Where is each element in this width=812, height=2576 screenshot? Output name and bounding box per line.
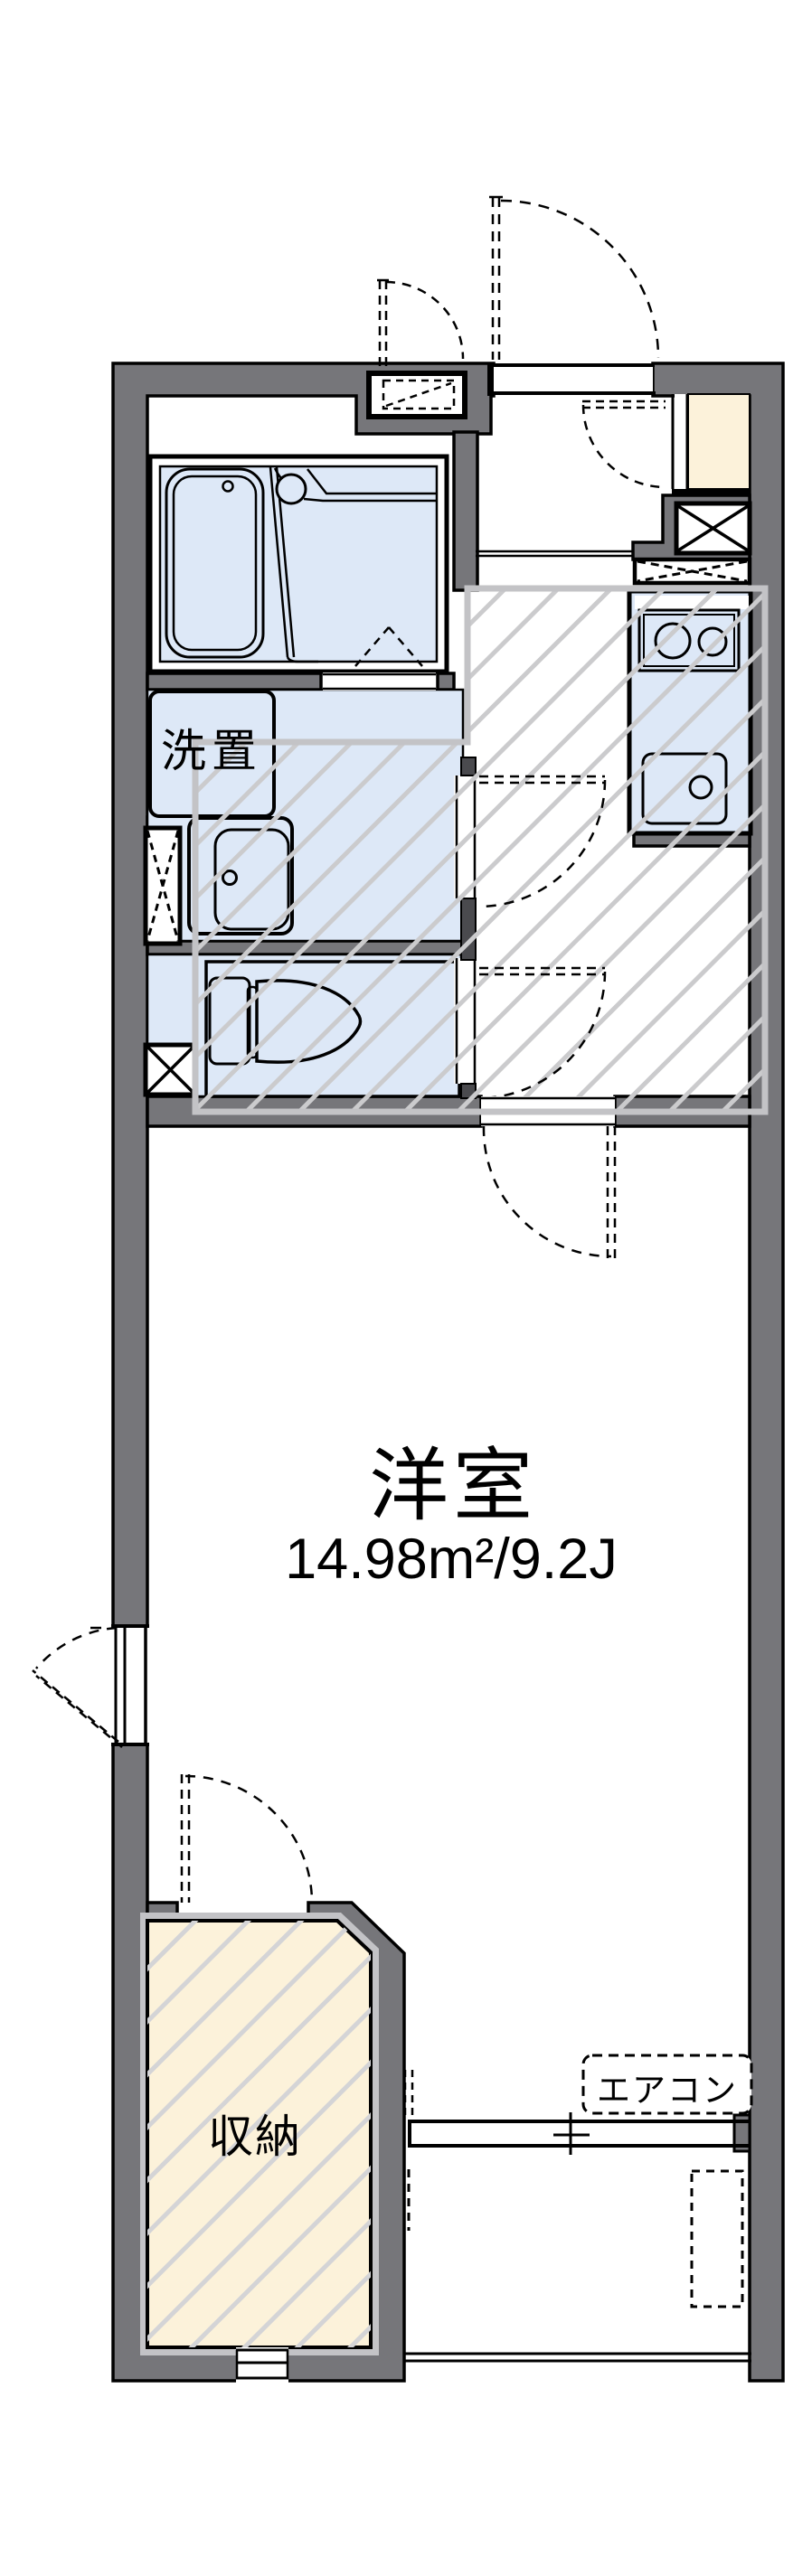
svg-text:エアコン: エアコン — [597, 2072, 738, 2109]
svg-text:洋室: 洋室 — [369, 1441, 537, 1530]
svg-text:洗置: 洗置 — [161, 726, 262, 776]
svg-text:収納: 収納 — [208, 2111, 302, 2162]
svg-text:14.98m²/9.2J: 14.98m²/9.2J — [285, 1528, 618, 1591]
